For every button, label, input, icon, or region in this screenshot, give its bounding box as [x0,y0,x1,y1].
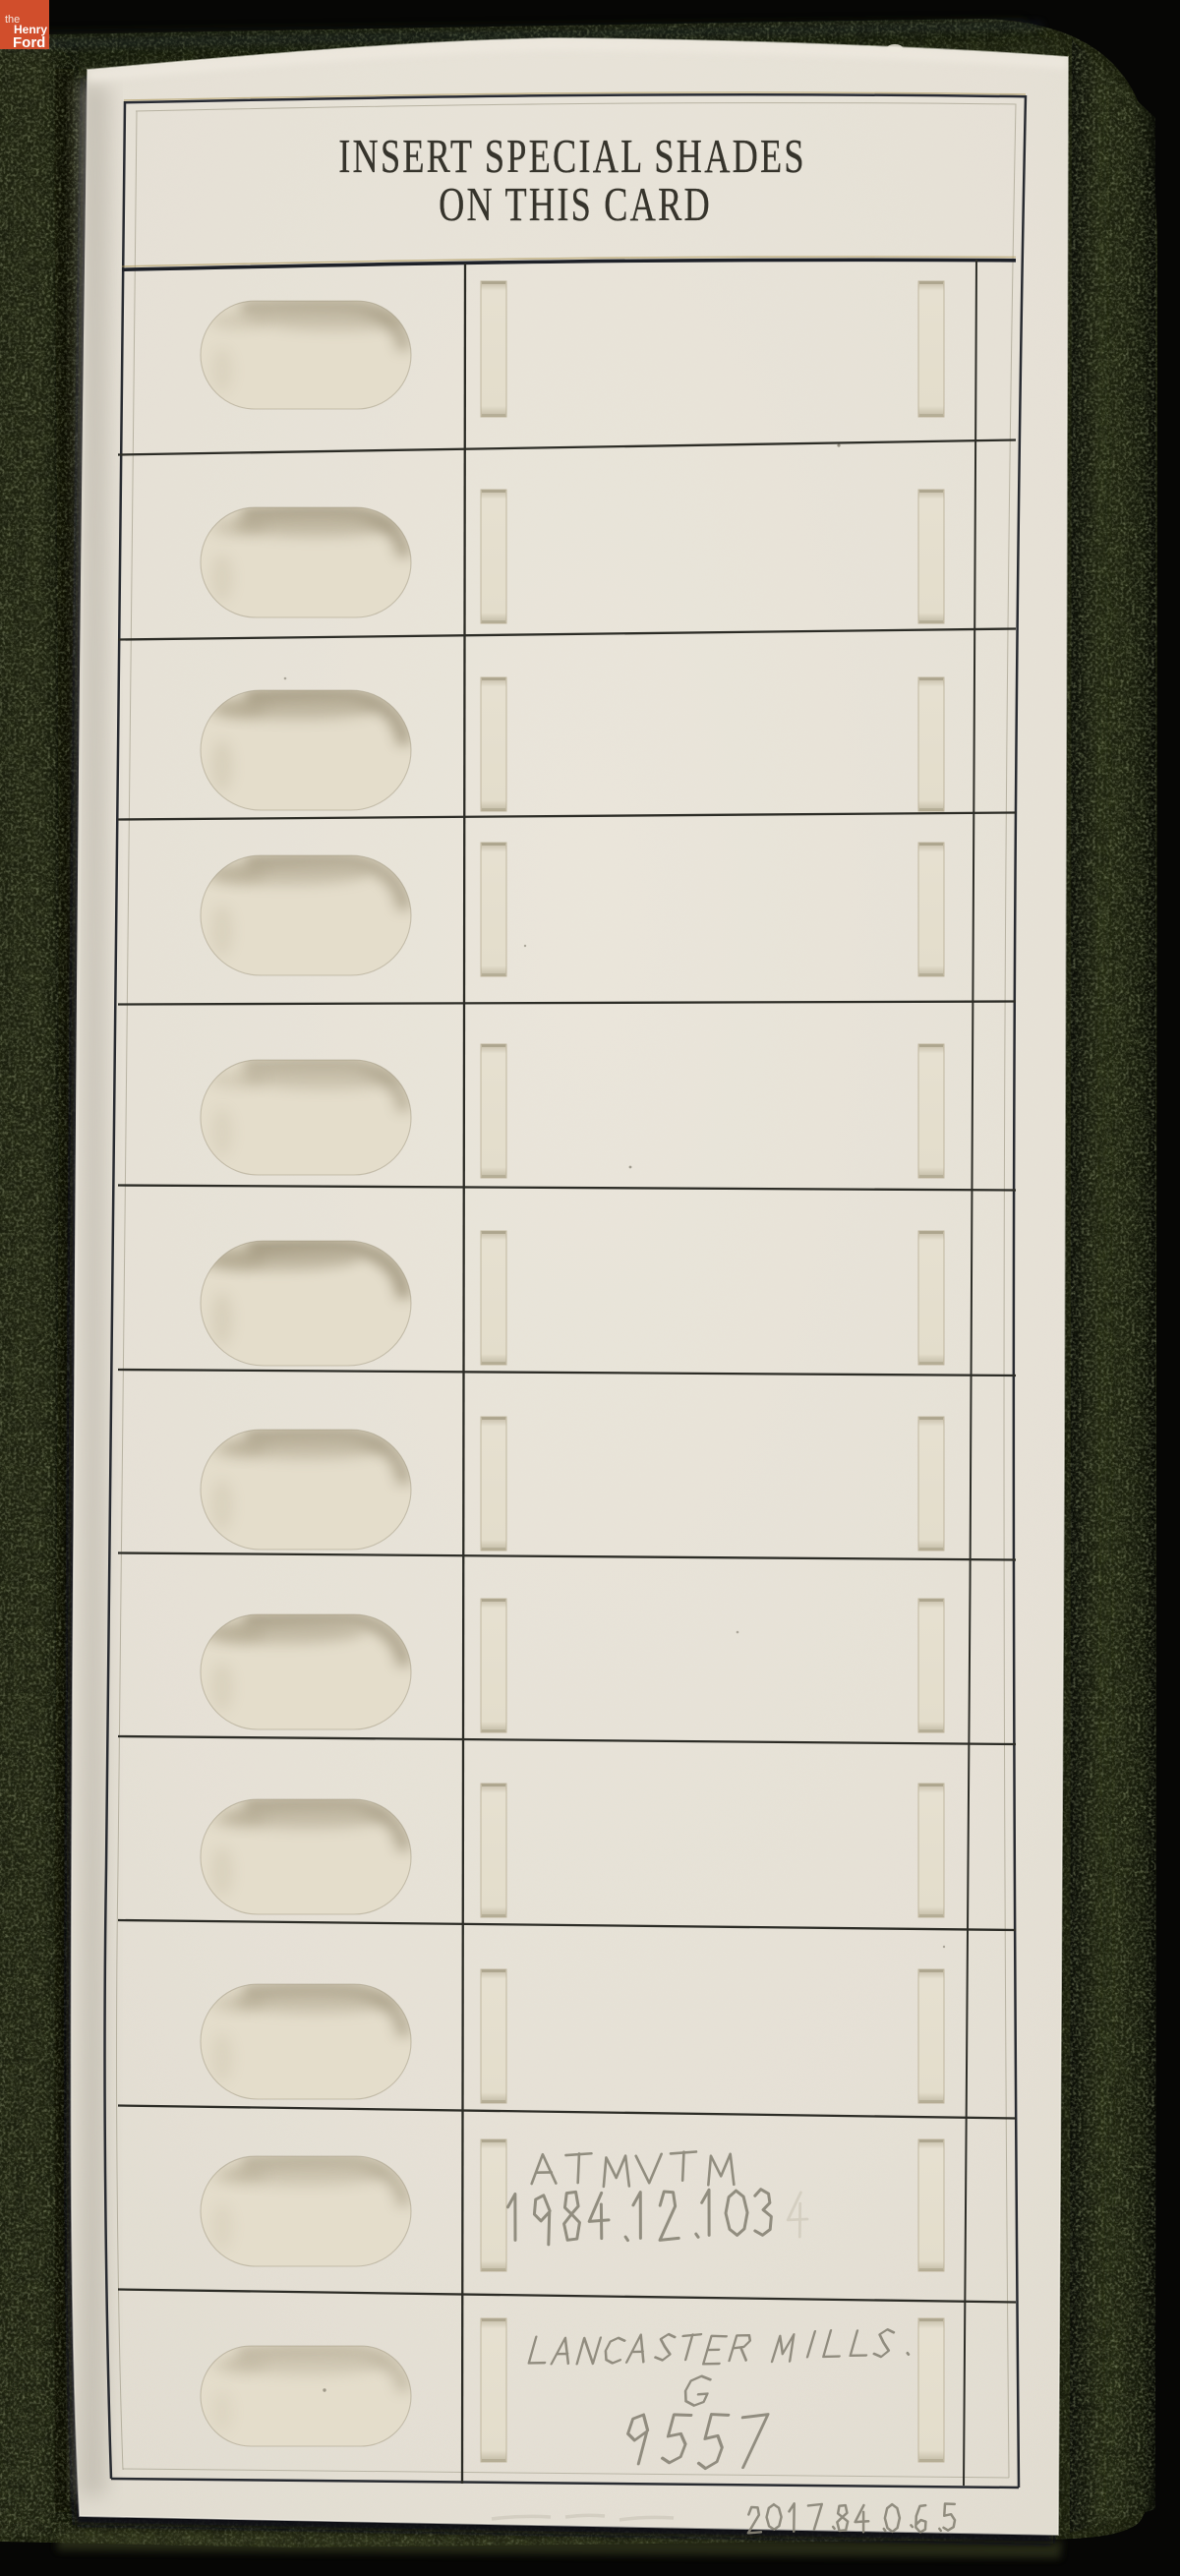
svg-text:Ford: Ford [13,34,45,51]
svg-text:INSERT SPECIAL SHADES: INSERT SPECIAL SHADES [338,131,806,183]
svg-text:ON THIS CARD: ON THIS CARD [439,179,712,231]
